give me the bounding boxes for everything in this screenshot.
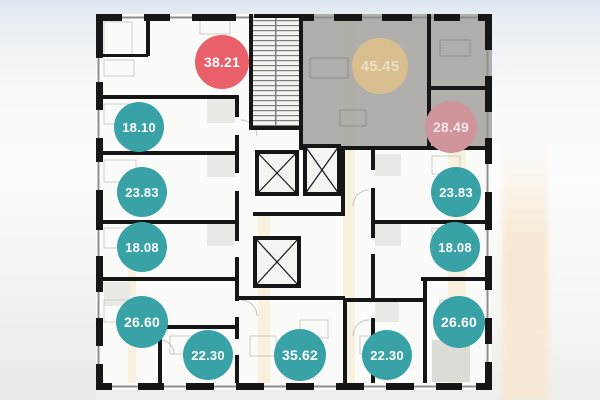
- unit-area-badge[interactable]: 23.83: [117, 167, 167, 217]
- unit-area-value: 35.62: [282, 347, 318, 363]
- unit-area-badge[interactable]: 18.10: [114, 102, 164, 152]
- unit-area-value: 38.21: [204, 54, 240, 70]
- unit-area-badge[interactable]: 18.08: [117, 222, 167, 272]
- unit-area-value: 45.45: [361, 58, 400, 75]
- unit-area-badge[interactable]: 23.83: [431, 167, 481, 217]
- unit-area-badge[interactable]: 28.49: [425, 101, 477, 153]
- unit-area-value: 22.30: [370, 348, 404, 363]
- unit-area-value: 26.60: [441, 314, 477, 330]
- unit-badges-layer: 38.2145.4528.4918.1023.8318.0826.6022.30…: [0, 0, 600, 400]
- unit-area-badge[interactable]: 18.08: [430, 222, 480, 272]
- unit-area-value: 18.10: [122, 120, 156, 135]
- unit-area-badge[interactable]: 35.62: [274, 329, 326, 381]
- unit-area-value: 18.08: [438, 240, 472, 255]
- unit-area-value: 23.83: [125, 185, 159, 200]
- unit-area-value: 23.83: [439, 185, 473, 200]
- unit-area-badge[interactable]: 22.30: [362, 330, 412, 380]
- floorplan-viewer: 38.2145.4528.4918.1023.8318.0826.6022.30…: [0, 0, 600, 400]
- unit-area-badge[interactable]: 26.60: [116, 296, 168, 348]
- unit-area-badge[interactable]: 45.45: [352, 38, 408, 94]
- unit-area-value: 28.49: [433, 119, 469, 135]
- unit-area-value: 22.30: [191, 348, 225, 363]
- unit-area-value: 18.08: [125, 240, 159, 255]
- unit-area-badge[interactable]: 22.30: [183, 330, 233, 380]
- unit-area-badge[interactable]: 38.21: [195, 35, 249, 89]
- unit-area-badge[interactable]: 26.60: [433, 296, 485, 348]
- unit-area-value: 26.60: [124, 314, 160, 330]
